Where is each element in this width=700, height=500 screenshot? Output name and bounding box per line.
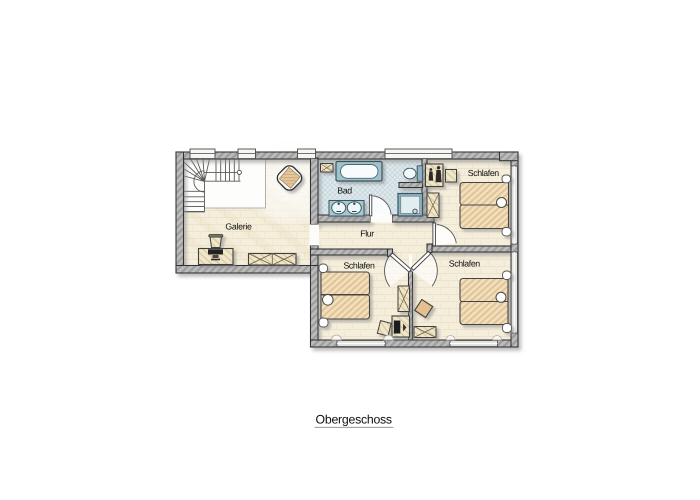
svg-text:Bad: Bad	[337, 186, 352, 196]
svg-text:Flur: Flur	[360, 228, 374, 238]
svg-text:Obergeschoss: Obergeschoss	[316, 413, 392, 427]
svg-text:Schlafen: Schlafen	[468, 168, 500, 178]
svg-text:Galerie: Galerie	[225, 221, 252, 231]
svg-text:Schlafen: Schlafen	[343, 260, 375, 270]
svg-text:Schlafen: Schlafen	[449, 259, 481, 269]
